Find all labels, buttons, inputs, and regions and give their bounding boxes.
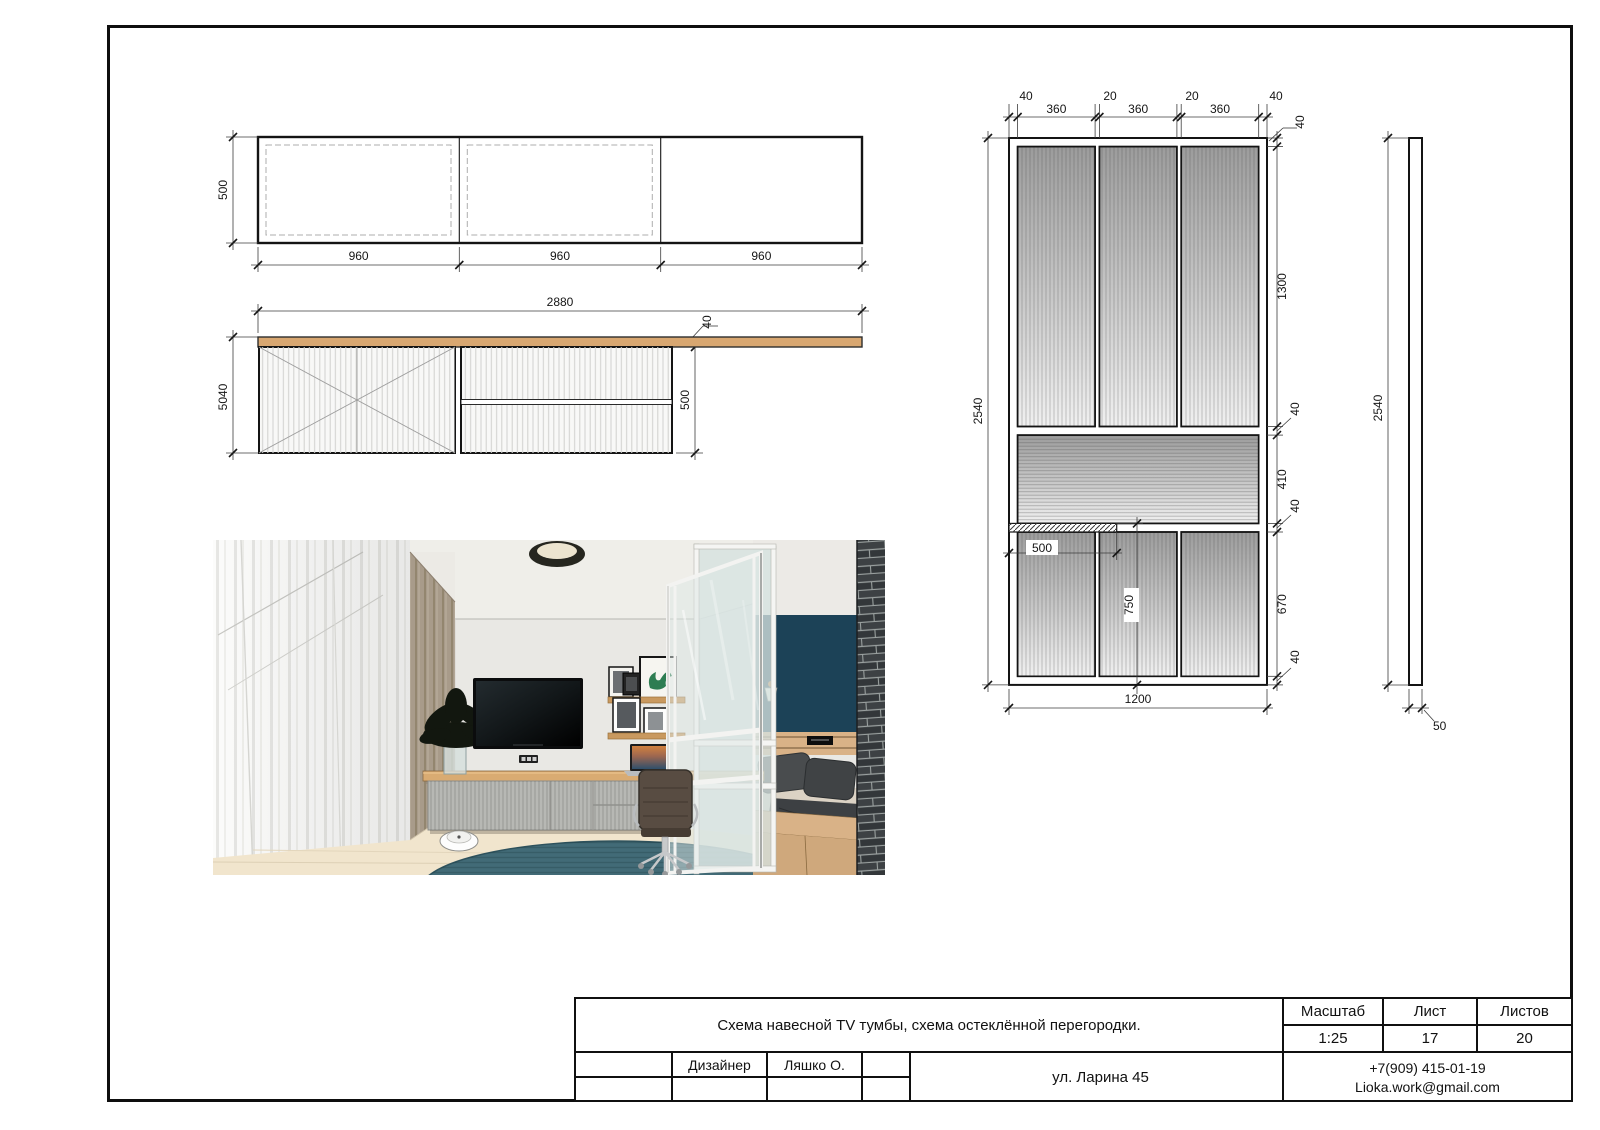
robot-vacuum [440, 831, 478, 851]
empty-cell [863, 1078, 911, 1102]
dim-label: 360 [1210, 102, 1230, 116]
dim-label: 1200 [1125, 692, 1152, 706]
contact-phone: +7(909) 415-01-19 [1369, 1059, 1485, 1078]
sheet-label: Лист [1384, 999, 1476, 1026]
scale-value: 1:25 [1284, 1026, 1382, 1051]
window-curtains [213, 540, 410, 875]
designer-label: Дизайнер [673, 1053, 768, 1078]
empty-cell [768, 1078, 863, 1102]
cabinet-right-drawers [461, 347, 672, 453]
dim-label: 40 [1288, 499, 1302, 513]
dim-label: 2540 [1371, 394, 1385, 421]
dim-label: 40 [1019, 89, 1033, 103]
partition-side-view: 2540 50 [1371, 131, 1447, 733]
sheets-label: Листов [1478, 999, 1571, 1026]
dim-label-right-height: 500 [678, 390, 692, 410]
ceiling-lamp [529, 541, 585, 567]
drawing-title: Схема навесной TV тумбы, схема остеклённ… [576, 999, 1284, 1051]
contact-email: Lioka.work@gmail.com [1355, 1078, 1500, 1097]
dim-label-left-height: 5040 [216, 383, 230, 410]
power-outlet [519, 755, 538, 763]
sheets-value: 20 [1478, 1026, 1571, 1051]
dim-label: 20 [1103, 89, 1117, 103]
dim-label: 500 [1032, 541, 1052, 555]
signature-grid: Дизайнер Ляшко О. [576, 1053, 919, 1102]
dim-label: 360 [1046, 102, 1066, 116]
dim-label: 1300 [1275, 273, 1289, 300]
tv [473, 678, 583, 749]
wood-countertop-section [258, 337, 862, 347]
title-block-bottom-row: Дизайнер Ляшко О. ул. Ларина 45 +7(909) … [576, 1053, 1571, 1102]
tv-cabinet-section-view: 2880 40 5040 500 [216, 295, 869, 460]
dim-label: 50 [1433, 719, 1447, 733]
dim-label: 410 [1275, 469, 1289, 489]
title-block-top-row: Схема навесной TV тумбы, схема остеклённ… [576, 999, 1571, 1053]
dim-label-height: 500 [216, 180, 230, 200]
dim-label: 40 [1293, 115, 1307, 129]
partition-middle-glass [1018, 435, 1259, 523]
partition-front-view: 40 360 20 360 20 360 40 40 1300 40 410 4… [971, 89, 1307, 715]
dim-label: 670 [1275, 594, 1289, 614]
scale-label: Масштаб [1284, 999, 1382, 1026]
dim-label-width2: 960 [550, 249, 570, 263]
scale-column: Масштаб 1:25 [1284, 999, 1384, 1051]
title-block: Схема навесной TV тумбы, схема остеклённ… [574, 997, 1573, 1102]
dim-label: 20 [1185, 89, 1199, 103]
tv-cabinet-front-view: 500 960 960 960 [216, 130, 869, 272]
dim-label-total-width: 2880 [547, 295, 574, 309]
dim-label: 2540 [971, 397, 985, 424]
brick-wall [857, 540, 885, 875]
sheet-value: 17 [1384, 1026, 1476, 1051]
dim-label-top-thickness: 40 [700, 315, 714, 329]
dim-label: 750 [1122, 595, 1136, 615]
partition-upper-glass [1018, 147, 1259, 427]
room-render [213, 540, 885, 875]
drawing-sheet: 500 960 960 960 [0, 0, 1600, 1130]
designer-name: Ляшко О. [768, 1053, 863, 1078]
empty-cell [576, 1078, 673, 1102]
contact-cell: +7(909) 415-01-19 Lioka.work@gmail.com [1284, 1053, 1571, 1102]
sheet-column: Лист 17 [1384, 999, 1478, 1051]
empty-cell [576, 1053, 673, 1078]
dim-label: 360 [1128, 102, 1148, 116]
dim-label-width3: 960 [751, 249, 771, 263]
partition-shelf [1009, 523, 1117, 532]
project-address: ул. Ларина 45 [919, 1053, 1284, 1102]
cabinet-left-doors [259, 347, 455, 453]
dim-label: 40 [1288, 650, 1302, 664]
dim-label: 40 [1288, 402, 1302, 416]
dim-label: 40 [1269, 89, 1283, 103]
dim-label-width1: 960 [349, 249, 369, 263]
empty-cell [863, 1053, 911, 1078]
sheets-column: Листов 20 [1478, 999, 1571, 1051]
empty-cell [673, 1078, 768, 1102]
